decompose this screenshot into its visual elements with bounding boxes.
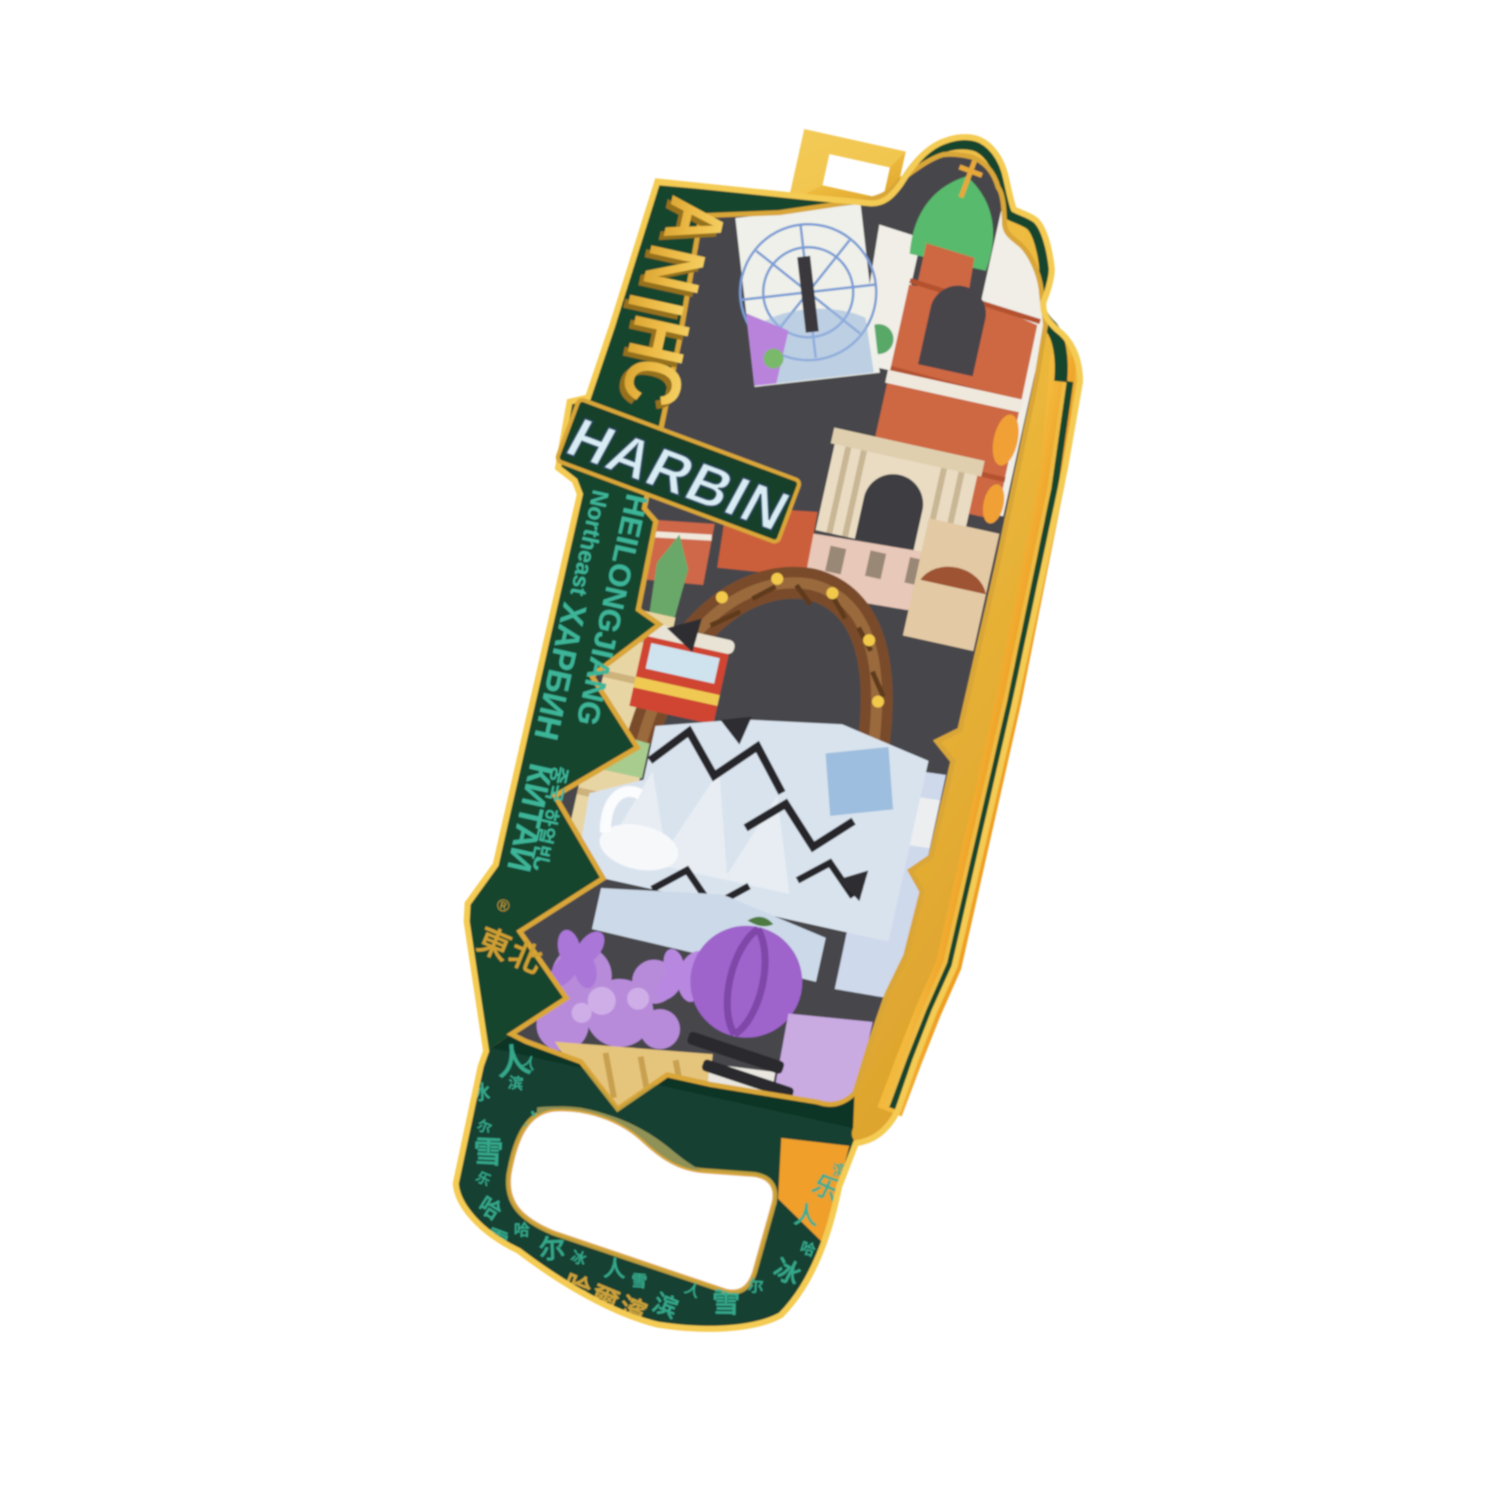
- svg-text:哈: 哈: [514, 1220, 530, 1239]
- svg-text:雪: 雪: [630, 1272, 647, 1291]
- svg-text:人: 人: [793, 1202, 819, 1231]
- svg-text:尔: 尔: [538, 1233, 565, 1264]
- svg-text:人: 人: [603, 1256, 626, 1282]
- svg-text:滨: 滨: [507, 1074, 524, 1094]
- svg-text:雪: 雪: [473, 1136, 504, 1170]
